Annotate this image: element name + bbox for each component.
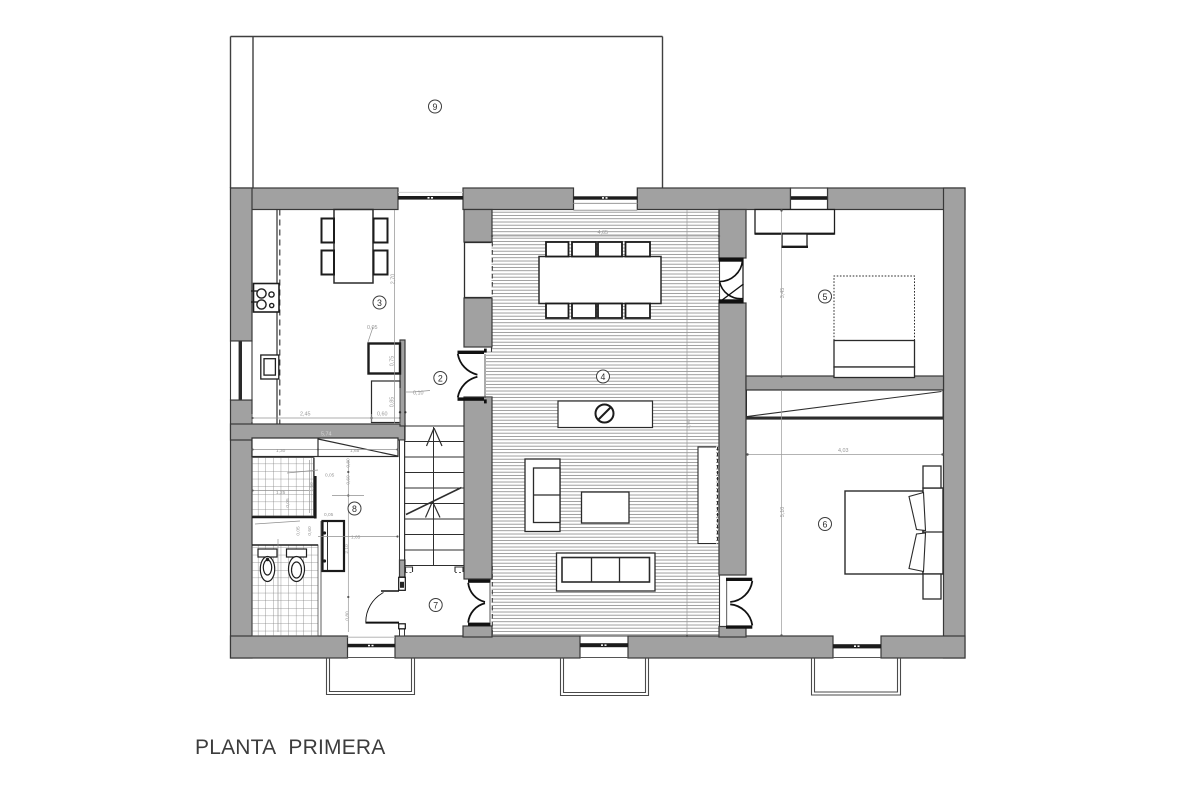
svg-text:3: 3: [377, 298, 382, 308]
svg-text:7: 7: [433, 601, 438, 611]
svg-text:0,75: 0,75: [390, 356, 396, 367]
svg-text:2,70: 2,70: [391, 274, 397, 285]
svg-text:0,05: 0,05: [324, 512, 334, 518]
svg-text:0,05: 0,05: [285, 498, 291, 508]
svg-text:9: 9: [433, 102, 438, 112]
svg-text:2: 2: [438, 374, 443, 384]
svg-text:0,05: 0,05: [296, 526, 302, 536]
svg-text:0,60: 0,60: [346, 475, 352, 485]
svg-text:0,80: 0,80: [346, 458, 352, 468]
svg-text:5: 5: [823, 292, 828, 302]
svg-text:4,90: 4,90: [686, 419, 692, 429]
svg-text:0,10: 0,10: [413, 391, 424, 397]
svg-text:5,10: 5,10: [780, 507, 786, 518]
svg-text:1,65: 1,65: [351, 535, 361, 541]
svg-text:3,45: 3,45: [780, 288, 786, 299]
svg-text:1,65: 1,65: [350, 448, 360, 454]
svg-text:0,05: 0,05: [325, 473, 335, 479]
svg-text:4: 4: [601, 372, 606, 382]
svg-text:1,30: 1,30: [276, 448, 286, 454]
svg-text:4,65: 4,65: [598, 230, 609, 236]
svg-text:4,03: 4,03: [838, 448, 849, 454]
svg-text:1,50: 1,50: [309, 482, 315, 492]
svg-text:6: 6: [823, 520, 828, 530]
svg-text:1,25: 1,25: [276, 490, 286, 496]
svg-text:0,05: 0,05: [367, 325, 378, 331]
svg-text:0,85: 0,85: [390, 397, 396, 408]
svg-text:0,80: 0,80: [345, 611, 351, 621]
svg-text:0,60: 0,60: [307, 526, 313, 536]
svg-text:5,74: 5,74: [321, 432, 332, 438]
svg-text:0,60: 0,60: [377, 412, 388, 418]
svg-text:2,10: 2,10: [344, 544, 350, 554]
svg-text:2,45: 2,45: [300, 412, 311, 418]
svg-text:8: 8: [352, 504, 357, 514]
